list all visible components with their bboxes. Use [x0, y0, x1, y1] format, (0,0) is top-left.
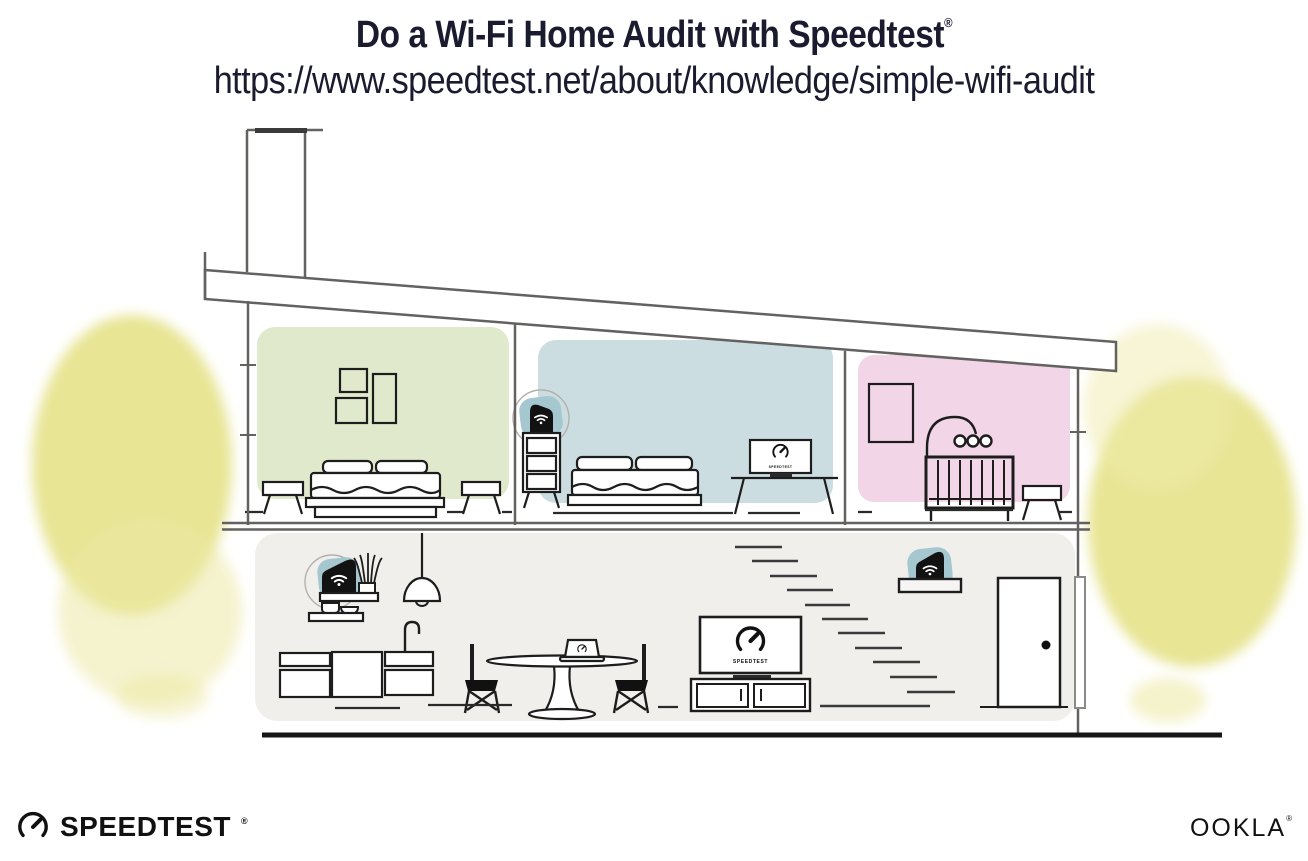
laptop — [560, 640, 604, 661]
bench — [1023, 486, 1061, 520]
tv-screen-label: SPEEDTEST — [733, 659, 768, 665]
pillow — [323, 461, 372, 473]
chimney — [247, 128, 323, 277]
speedtest-gauge-icon — [16, 810, 50, 844]
chair-seat — [615, 680, 648, 691]
bed-platform — [306, 498, 444, 507]
speedtest-logo: SPEEDTEST® — [16, 810, 248, 844]
wall-shelf-lower — [309, 613, 363, 621]
mobile-ball — [981, 436, 992, 447]
mobile-ball — [955, 436, 966, 447]
table-base — [529, 709, 595, 719]
pillow — [376, 461, 427, 473]
cup — [322, 603, 339, 613]
chair-seat — [465, 680, 498, 691]
dresser — [523, 433, 560, 508]
house-illustration: SPEEDTEST — [0, 0, 1308, 861]
monitor-stand — [770, 473, 792, 477]
pillow — [577, 457, 632, 470]
foliage-right-blob — [1084, 324, 1296, 722]
mid-floor-band — [222, 523, 1090, 530]
nursery-wall-fill — [858, 355, 1070, 502]
bed-platform — [568, 495, 701, 505]
wall-shelf — [899, 579, 961, 592]
chimney-cap — [255, 128, 307, 133]
ookla-wordmark: OOKLA — [1190, 814, 1286, 843]
wall-shelf-upper — [320, 593, 378, 601]
foliage-left-blob — [32, 315, 242, 718]
tv-with-console: SPEEDTEST — [691, 617, 810, 711]
floor-dashes — [858, 510, 1072, 512]
mattress — [311, 473, 440, 498]
mobile-ball — [968, 436, 979, 447]
monitor-screen-label: SPEEDTEST — [769, 465, 793, 469]
pillow — [636, 457, 692, 470]
wall-trim — [1075, 577, 1085, 708]
bed-base — [315, 507, 436, 517]
speedtest-wordmark: SPEEDTEST — [60, 811, 231, 843]
ookla-registered-mark: ® — [1286, 814, 1292, 823]
ookla-logo: OOKLA® — [1190, 814, 1292, 843]
mattress — [572, 470, 698, 495]
door-knob-icon — [1042, 641, 1051, 650]
speedtest-registered-mark: ® — [241, 816, 248, 826]
